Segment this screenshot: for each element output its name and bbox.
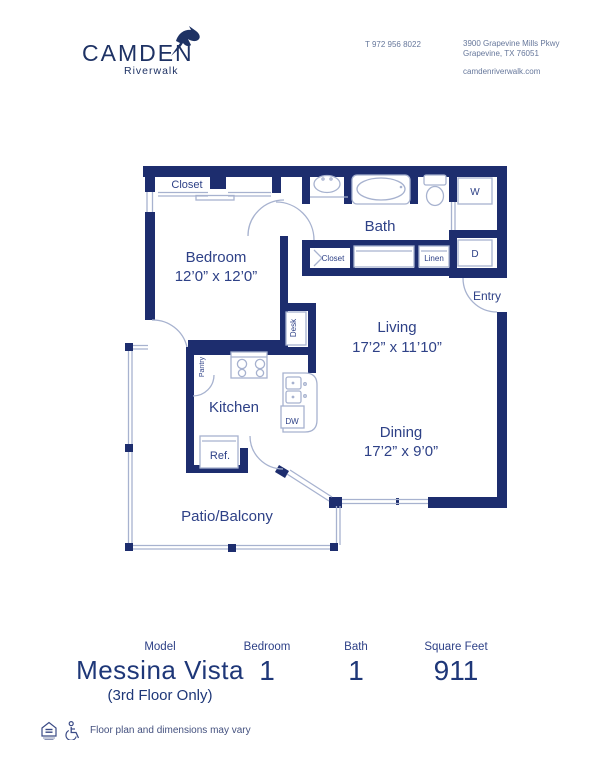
website-link[interactable]: camdenriverwalk.com [463,67,540,76]
bedroom-dims: 12’0” x 12’0” [175,268,258,285]
patio-door-arc [250,436,283,469]
contact-phone: T 972 956 8022 [365,40,421,49]
model-note: (3rd Floor Only) [60,687,260,704]
dining-label: Dining [380,424,423,441]
refrigerator-label: Ref. [210,450,230,462]
bedroom-patio-door-arc [152,320,187,347]
dishwasher-label: DW [285,417,299,426]
desk-label: Desk [289,318,298,337]
bedroom-door-arc [248,200,284,236]
bedroom-count-label: Bedroom [217,641,317,653]
hall-closet-label: Closet [322,254,345,263]
summary-bedroom: Bedroom 1 [217,641,317,687]
dining-dims: 17’2” x 9’0” [364,443,438,460]
bedroom-label: Bedroom [186,249,247,266]
pantry-door-arc [193,375,214,396]
bath-label: Bath [365,218,396,235]
bath-count-value: 1 [306,655,406,687]
disclaimer-text: Floor plan and dimensions may vary [90,725,251,736]
floorplan-flyer: CAMDEN Riverwalk T 972 956 8022 3900 Gra… [0,0,600,776]
living-label: Living [377,319,416,336]
pantry-label: Pantry [199,356,206,377]
floor-plan-drawing: Closet Bedroom 12’0” x 12’0” Bath Closet… [110,150,520,595]
toilet-tank [424,175,446,185]
wheelchair-accessible-icon [64,721,80,740]
bath-fixtures [310,175,446,206]
hall-shelf-closet [354,246,414,267]
bath-count-label: Bath [306,641,406,653]
summary-sqft: Square Feet 911 [406,641,506,687]
bath-door-arc [276,202,314,240]
entry-label: Entry [473,289,501,303]
washer-label: W [470,187,480,198]
contact-address: 3900 Grapevine Mills Pkwy Grapevine, TX … [463,39,559,58]
sqft-value: 911 [406,655,506,687]
linen-label: Linen [424,254,444,263]
equal-housing-icon [40,721,58,740]
contact-address-line1: 3900 Grapevine Mills Pkwy [463,39,559,49]
summary-bath: Bath 1 [306,641,406,687]
bath-sink [314,176,340,193]
hummingbird-logo-icon [168,26,202,58]
contact-address-line2: Grapevine, TX 76051 [463,49,559,59]
disclaimer-row: Floor plan and dimensions may vary [40,721,251,740]
kitchen-label: Kitchen [209,399,259,416]
brand-community-name: Riverwalk [124,65,179,77]
living-dims: 17’2” x 11’10” [352,339,442,356]
patio-label: Patio/Balcony [181,508,273,525]
dryer-label: D [471,249,478,260]
toilet-bowl [427,187,444,206]
walls [143,166,507,508]
bedroom-closet-label: Closet [171,179,202,191]
bedroom-count-value: 1 [217,655,317,687]
sqft-label: Square Feet [406,641,506,653]
